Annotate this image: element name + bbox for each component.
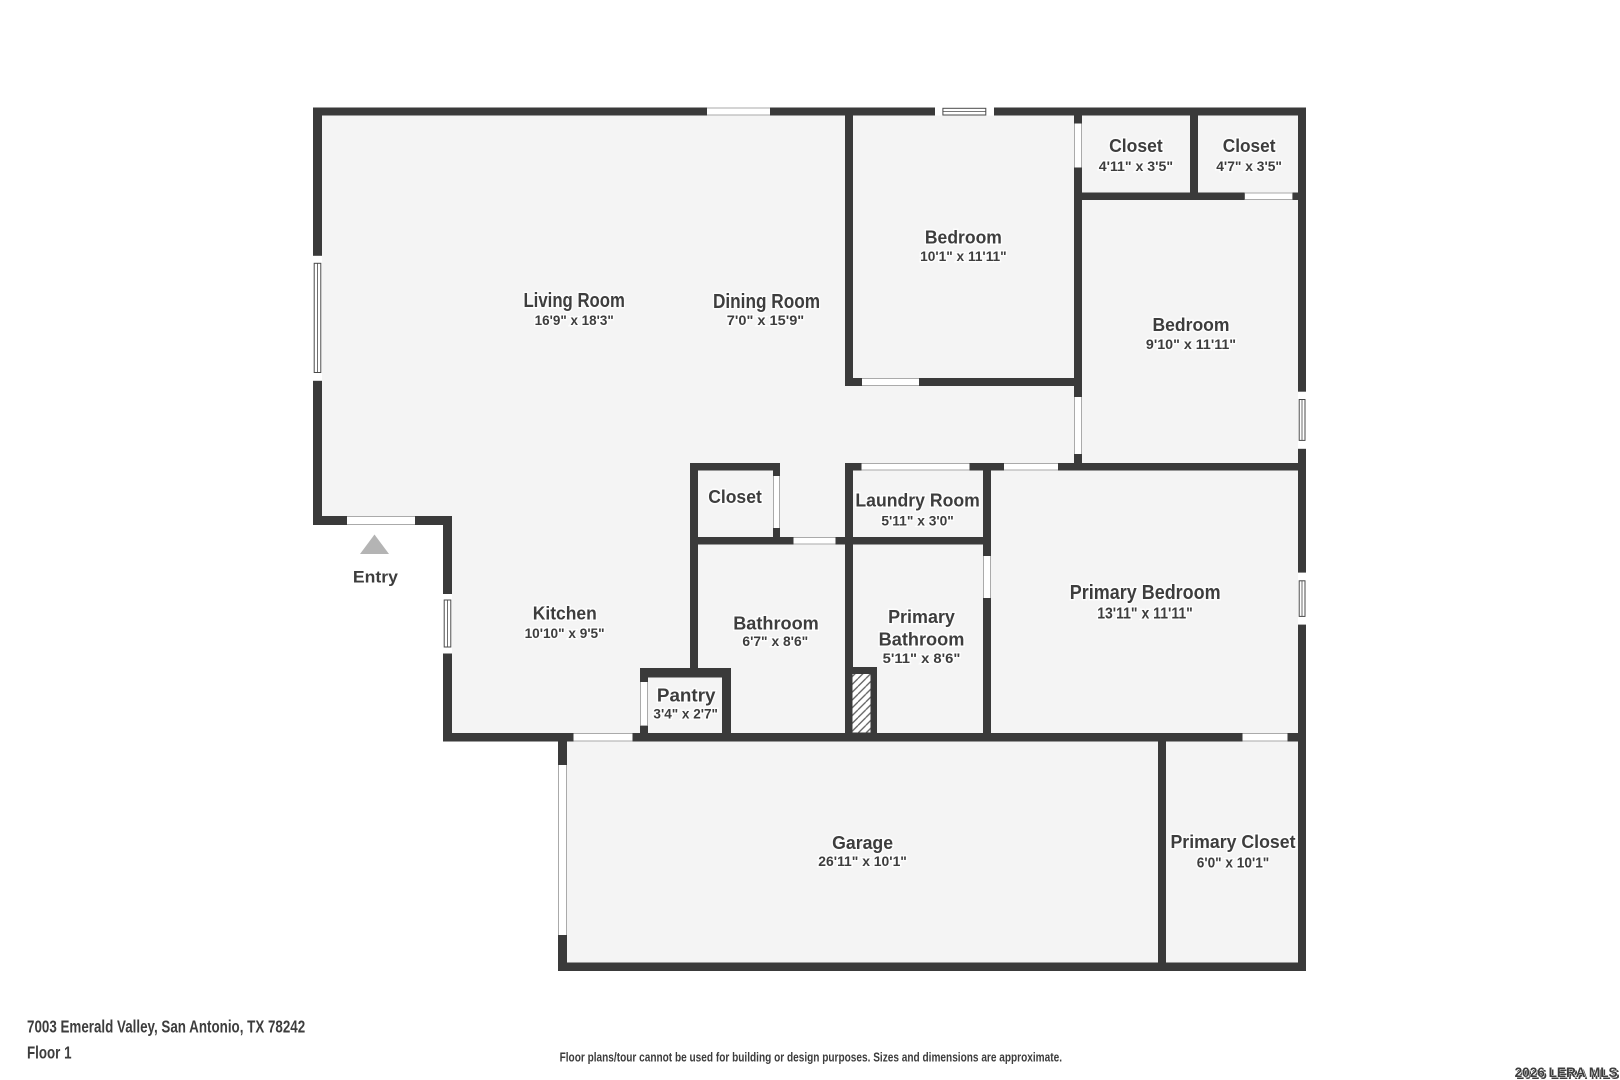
svg-text:4'7" x 3'5": 4'7" x 3'5" (1216, 159, 1282, 174)
svg-text:Primary Bedroom: Primary Bedroom (1070, 582, 1221, 604)
svg-text:10'10" x 9'5": 10'10" x 9'5" (525, 626, 605, 641)
svg-text:9'10" x 11'11": 9'10" x 11'11" (1146, 337, 1236, 352)
svg-text:6'0" x 10'1": 6'0" x 10'1" (1197, 856, 1270, 872)
svg-text:5'11" x 3'0": 5'11" x 3'0" (881, 514, 954, 529)
svg-text:Closet: Closet (1223, 135, 1276, 156)
svg-text:Bedroom: Bedroom (1153, 314, 1230, 335)
svg-text:Floor plans/tour cannot be use: Floor plans/tour cannot be used for buil… (560, 1051, 1062, 1065)
svg-text:Primary: Primary (888, 606, 955, 627)
svg-text:Laundry Room: Laundry Room (855, 490, 979, 511)
svg-text:3'4" x 2'7": 3'4" x 2'7" (653, 706, 718, 721)
svg-text:Living Room: Living Room (523, 290, 625, 312)
svg-text:Kitchen: Kitchen (533, 603, 597, 624)
svg-text:Floor 1: Floor 1 (27, 1042, 72, 1062)
svg-text:6'7" x 8'6": 6'7" x 8'6" (742, 634, 808, 649)
svg-text:Dining Room: Dining Room (713, 291, 820, 313)
svg-text:16'9" x 18'3": 16'9" x 18'3" (535, 312, 614, 328)
svg-text:13'11" x 11'11": 13'11" x 11'11" (1097, 606, 1193, 623)
svg-text:Closet: Closet (1109, 135, 1163, 156)
svg-text:Garage: Garage (832, 832, 893, 853)
svg-text:Bathroom: Bathroom (879, 629, 965, 650)
svg-text:7003 Emerald Valley, San Anton: 7003 Emerald Valley, San Antonio, TX 782… (27, 1017, 305, 1037)
svg-text:Closet: Closet (708, 486, 762, 507)
svg-text:10'1" x 11'11": 10'1" x 11'11" (920, 249, 1007, 264)
svg-text:26'11" x 10'1": 26'11" x 10'1" (818, 853, 907, 869)
svg-text:Primary Closet: Primary Closet (1171, 831, 1296, 852)
svg-text:7'0" x 15'9": 7'0" x 15'9" (727, 312, 804, 328)
svg-text:Bathroom: Bathroom (733, 612, 819, 633)
svg-text:5'11" x 8'6": 5'11" x 8'6" (883, 651, 961, 666)
svg-text:Bedroom: Bedroom (925, 226, 1002, 247)
svg-text:Pantry: Pantry (657, 685, 716, 706)
svg-text:2026 LERA MLS: 2026 LERA MLS (1515, 1064, 1618, 1080)
svg-text:Entry: Entry (353, 568, 399, 587)
svg-text:4'11" x 3'5": 4'11" x 3'5" (1099, 159, 1173, 174)
